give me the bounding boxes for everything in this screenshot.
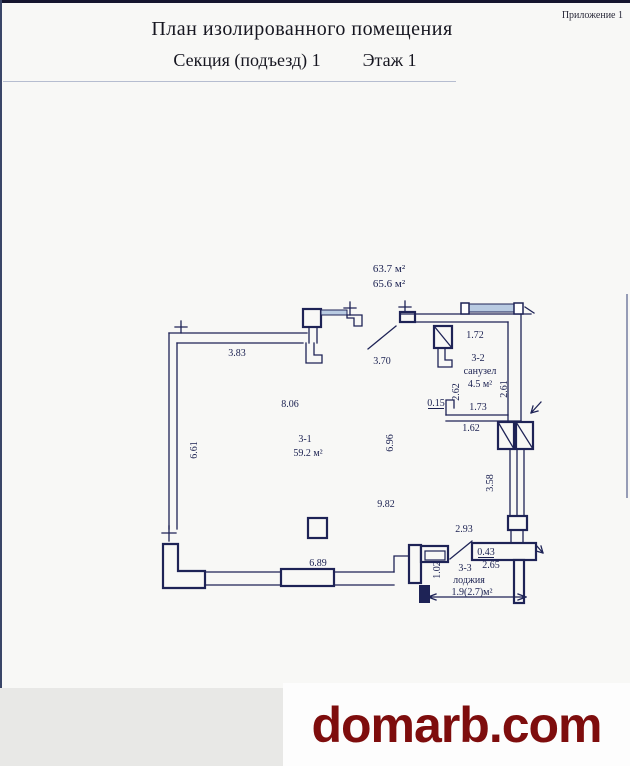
dim-bath-top: 1.72 (466, 330, 484, 341)
window-wall-right (510, 449, 524, 516)
wall-bath-bottom (446, 415, 521, 421)
wall-bath-notch (446, 400, 454, 415)
dim-top-left-wall: 3.83 (228, 348, 246, 359)
dim-room-mid-v: 6.96 (385, 434, 396, 452)
room2-name: санузел (464, 366, 497, 377)
dim-entry-opening: 3.70 (373, 356, 391, 367)
pier-bottom-left (163, 544, 205, 588)
dim-loggia-depth: 1.02 (432, 561, 443, 579)
tick-window-end (525, 307, 534, 313)
dim-loggia-diag: 2.93 (455, 524, 473, 535)
wall-bottom-right-seg (334, 572, 394, 585)
pilaster-block (303, 309, 321, 327)
tick-top-left (175, 321, 187, 333)
window-bottom (281, 569, 334, 586)
watermark-box: domarb.com (283, 683, 630, 766)
door-leaf-loggia (450, 541, 472, 559)
vent-shaft-diagonal (434, 326, 452, 348)
tick-top-right (399, 301, 411, 312)
window-cap-left (461, 303, 469, 314)
room3-number: 3-3 (458, 563, 471, 574)
wall-bath-left-foot (438, 348, 452, 367)
wall-bottom-left-seg (205, 572, 281, 585)
corner-step-bottom-right (394, 545, 409, 572)
dim-room-mid-h: 9.82 (377, 499, 395, 510)
door-leaf-entry (368, 326, 396, 349)
watermark-text: domarb.com (311, 700, 601, 750)
pilaster-hook (306, 343, 322, 363)
pilaster-step (347, 315, 362, 326)
area-total-2: 65.6 м² (373, 278, 406, 290)
arrow-right-wall (531, 402, 541, 413)
dim-bath-bottom: 1.73 (469, 402, 487, 413)
right-wall-block (508, 516, 527, 530)
dim-loggia-wall: 0.43 (477, 547, 495, 558)
dim-bottom-wall: 6.89 (309, 558, 327, 569)
tick-bottom-left (162, 526, 176, 541)
dim-bath-notch: 0.15 (427, 398, 445, 409)
dim-right-window: 3.58 (485, 474, 496, 492)
loggia-lower-pier (419, 585, 430, 603)
dim-below-bath: 1.62 (462, 423, 480, 434)
room3-area: 1.9(2.7)м² (452, 587, 493, 598)
dim-room-top: 8.06 (281, 399, 299, 410)
dim-bath-left: 2.62 (451, 383, 462, 401)
area-total-1: 63.7 м² (373, 263, 406, 275)
document-page: Приложение 1 План изолированного помещен… (0, 0, 630, 766)
room1-number: 3-1 (298, 434, 311, 445)
room1-area: 59.2 м² (293, 448, 322, 459)
room2-number: 3-2 (471, 353, 484, 364)
room2-area: 4.5 м² (468, 379, 492, 390)
right-wall-lower-lines (511, 530, 523, 543)
window-cap-right (514, 303, 523, 314)
column-2-diagonal (516, 422, 533, 449)
room-column (308, 518, 327, 538)
column-1-diagonal (498, 422, 514, 449)
dim-left-wall: 6.61 (189, 441, 200, 459)
window-strip-top (321, 310, 347, 315)
loggia-left-bar (409, 545, 421, 583)
room3-name: лоджия (453, 575, 485, 586)
dim-bath-right: 2.61 (499, 380, 510, 398)
pilaster-neck (309, 327, 317, 343)
floor-plan-drawing: 63.7 м²65.6 м²3.833.701.728.066.613-159.… (0, 0, 630, 766)
dim-loggia-width: 2.65 (482, 560, 500, 571)
